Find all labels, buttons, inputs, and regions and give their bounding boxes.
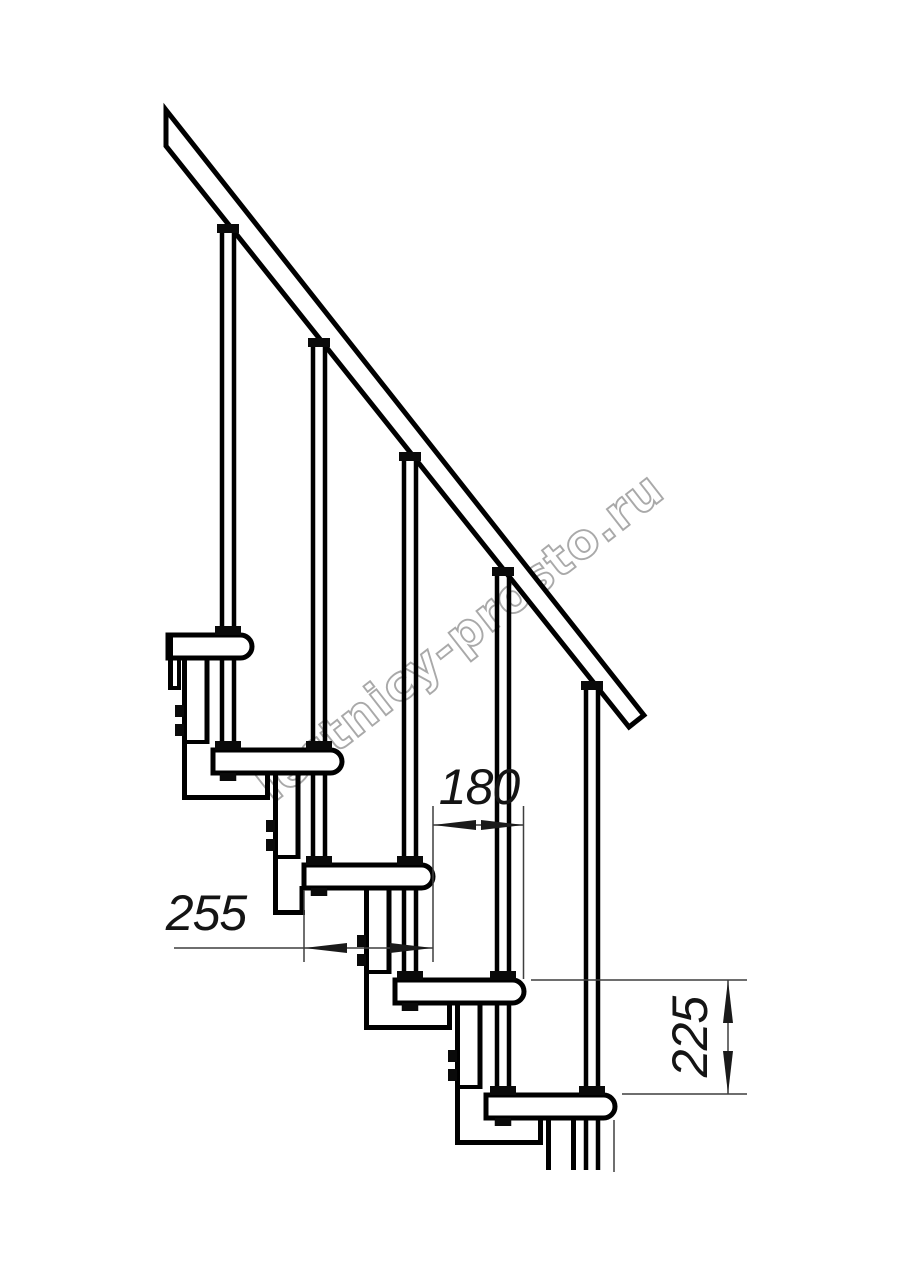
under-tread-nut [495,1118,511,1126]
baluster-rod-4 [497,570,509,1126]
support-module-5-partial [549,1116,574,1170]
under-tread-nut [220,773,236,781]
tread-collar [490,971,516,980]
tread-collar [490,1086,516,1095]
tread-collar [397,971,423,980]
tread-3 [304,865,433,888]
tread-1 [168,635,252,658]
tread-collar [306,741,332,750]
arrowhead-down [723,1051,733,1094]
tread-collar [306,856,332,865]
tread-4 [395,980,524,1003]
rail-cap [492,567,514,576]
bolt-tab [266,839,275,851]
tread-collar [579,1086,605,1095]
technical-drawing-page: lestnicy-prosto.ru [0,0,914,1280]
arrowhead-up [723,980,733,1023]
dimension-label-255: 255 [165,885,248,941]
rail-cap [308,338,330,347]
arrowhead-left [304,943,347,953]
arrowhead-right [390,943,433,953]
rail-cap [581,681,603,690]
tread-collar [397,856,423,865]
bolt-tab [448,1069,457,1081]
dimension-label-180: 180 [439,759,521,815]
dimension-225: 225 [531,980,747,1094]
dimension-label-225: 225 [662,996,718,1079]
bolt-tab [175,724,184,736]
bolt-tab [448,1050,457,1062]
bolt-tab [266,820,275,832]
arrowhead-right [481,820,524,830]
baluster-rod-1 [222,228,234,781]
bolt-tab [357,935,366,947]
rail-cap [217,224,239,233]
under-tread-nut [402,1003,418,1011]
tread-2 [213,750,342,773]
under-tread-nut [311,888,327,896]
bolt-tab [357,954,366,966]
tread-collar [215,741,241,750]
baluster-rod-3 [404,456,416,1011]
tread-collar [215,626,241,635]
staircase-drawing: lestnicy-prosto.ru [0,0,914,1280]
tread-5 [486,1095,615,1118]
arrowhead-left [433,820,476,830]
bolt-tab [175,705,184,717]
rail-cap [399,452,421,461]
baluster-rod-2 [313,342,325,896]
